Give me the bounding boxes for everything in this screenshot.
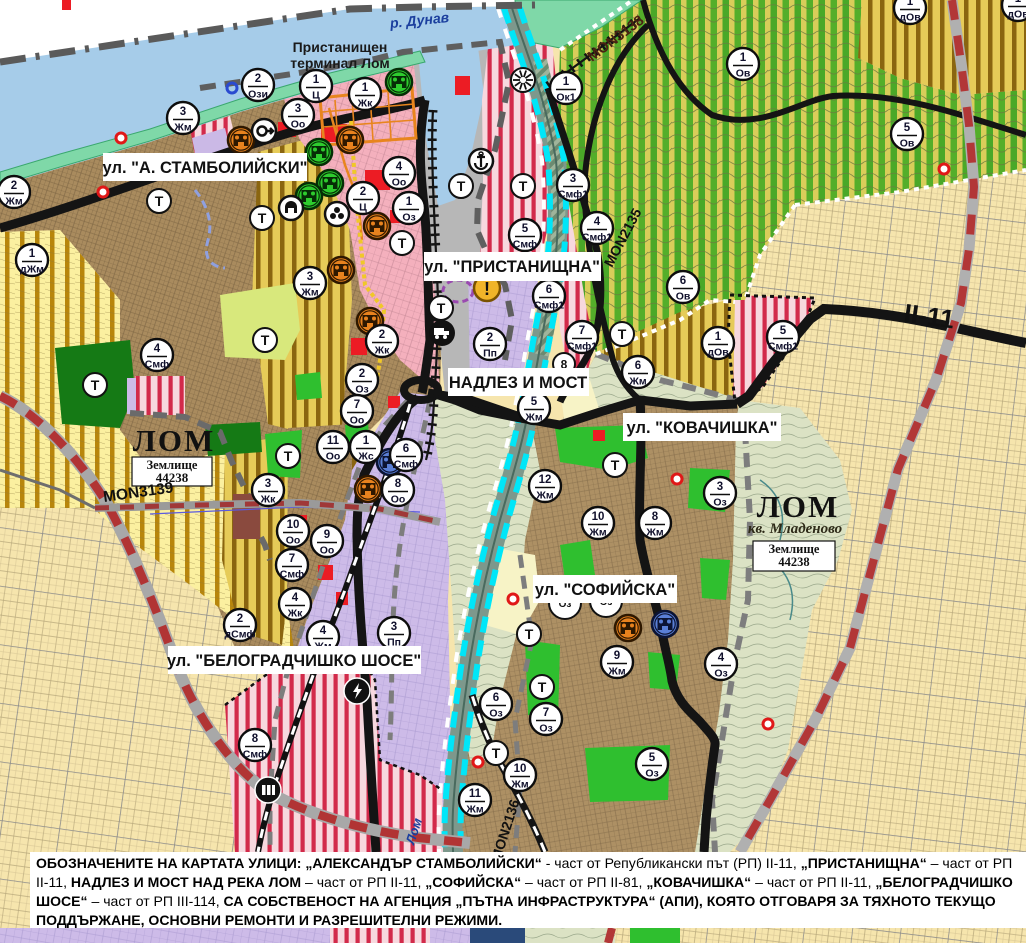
svg-text:Жм: Жм — [173, 122, 191, 134]
svg-text:Жм: Жм — [510, 779, 528, 791]
svg-text:1: 1 — [406, 196, 413, 208]
svg-text:Оз: Оз — [489, 708, 502, 720]
svg-text:T: T — [525, 626, 534, 642]
svg-text:10: 10 — [287, 519, 300, 531]
svg-text:терминал Лом: терминал Лом — [290, 55, 390, 71]
svg-text:T: T — [618, 326, 627, 342]
svg-text:T: T — [611, 457, 620, 473]
svg-text:T: T — [258, 210, 267, 226]
svg-text:Пристанищен: Пристанищен — [293, 39, 388, 55]
svg-text:Ов: Ов — [900, 138, 915, 150]
svg-text:Жм: Жм — [300, 287, 318, 299]
svg-text:7: 7 — [579, 325, 585, 337]
svg-text:2: 2 — [11, 180, 17, 192]
svg-text:6: 6 — [546, 284, 552, 296]
svg-text:Ок1: Ок1 — [556, 92, 575, 104]
svg-text:5: 5 — [780, 325, 787, 337]
svg-text:Оо: Оо — [350, 415, 365, 427]
svg-text:3: 3 — [295, 103, 301, 115]
svg-text:2: 2 — [359, 368, 365, 380]
svg-text:дЖм: дЖм — [20, 264, 44, 276]
svg-text:11: 11 — [327, 435, 340, 447]
svg-text:Смф: Смф — [243, 749, 267, 761]
svg-text:7: 7 — [543, 707, 549, 719]
svg-text:Оо: Оо — [326, 451, 341, 463]
svg-text:4: 4 — [154, 343, 161, 355]
svg-text:Ц: Ц — [312, 90, 320, 102]
svg-text:T: T — [538, 679, 547, 695]
svg-text:Смф1: Смф1 — [567, 341, 597, 353]
svg-text:1: 1 — [1015, 0, 1022, 5]
svg-text:4: 4 — [320, 625, 327, 637]
svg-text:1: 1 — [362, 82, 369, 94]
svg-text:Жм: Жм — [4, 196, 22, 208]
svg-text:Жм: Жм — [645, 527, 663, 539]
svg-text:1: 1 — [363, 435, 370, 447]
svg-text:Ов: Ов — [676, 291, 691, 303]
svg-text:5: 5 — [522, 223, 529, 235]
svg-text:7: 7 — [354, 399, 360, 411]
svg-text:1: 1 — [313, 74, 320, 86]
svg-text:T: T — [519, 178, 528, 194]
svg-text:1: 1 — [29, 248, 36, 260]
svg-text:9: 9 — [614, 650, 620, 662]
svg-text:T: T — [437, 300, 446, 316]
svg-text:1: 1 — [715, 331, 722, 343]
svg-text:Ов: Ов — [736, 68, 751, 80]
svg-text:7: 7 — [289, 553, 295, 565]
svg-text:1: 1 — [740, 52, 747, 64]
svg-text:11: 11 — [469, 788, 482, 800]
svg-text:6: 6 — [403, 443, 409, 455]
svg-text:4: 4 — [292, 592, 299, 604]
svg-text:Ози: Ози — [248, 89, 268, 101]
svg-text:Жс: Жс — [357, 451, 373, 463]
svg-text:Оо: Оо — [392, 177, 407, 189]
svg-text:Смф1: Смф1 — [534, 300, 564, 312]
svg-text:Оз: Оз — [714, 668, 727, 680]
svg-text:Жк: Жк — [260, 494, 276, 506]
svg-text:3: 3 — [180, 106, 186, 118]
svg-text:ул. "КОВАЧИШКА": ул. "КОВАЧИШКА" — [627, 419, 778, 437]
svg-text:ПОДДЪРЖАНЕ, ОСНОВНИ РЕМОНТИ И: ПОДДЪРЖАНЕ, ОСНОВНИ РЕМОНТИ И РАЗРЕШИТЕЛ… — [36, 912, 502, 928]
svg-text:2: 2 — [487, 332, 493, 344]
svg-text:Оз: Оз — [402, 212, 415, 224]
svg-text:3: 3 — [307, 271, 313, 283]
svg-text:5: 5 — [531, 396, 538, 408]
svg-text:2: 2 — [255, 73, 261, 85]
svg-text:3: 3 — [717, 481, 723, 493]
svg-text:Смф1: Смф1 — [768, 341, 798, 353]
svg-text:Ц: Ц — [359, 202, 367, 214]
svg-text:44238: 44238 — [778, 555, 809, 569]
svg-text:T: T — [492, 745, 501, 761]
svg-text:1: 1 — [563, 76, 570, 88]
svg-text:Жк: Жк — [287, 608, 303, 620]
svg-text:Смф1: Смф1 — [558, 189, 588, 201]
svg-text:Оз: Оз — [713, 497, 726, 509]
svg-text:ЛОМ: ЛОМ — [133, 423, 215, 458]
svg-text:Жк: Жк — [357, 98, 373, 110]
svg-text:T: T — [284, 448, 293, 464]
svg-text:!: ! — [484, 279, 490, 299]
svg-text:ул. "ПРИСТАНИЩНА": ул. "ПРИСТАНИЩНА" — [424, 258, 600, 276]
svg-text:Оз: Оз — [645, 768, 658, 780]
svg-text:Жм: Жм — [588, 527, 606, 539]
svg-text:9: 9 — [324, 529, 330, 541]
svg-text:Жм: Жм — [535, 490, 553, 502]
svg-text:4: 4 — [718, 652, 725, 664]
svg-text:Жм: Жм — [524, 412, 542, 424]
svg-text:6: 6 — [635, 360, 641, 372]
svg-text:6: 6 — [493, 692, 499, 704]
svg-text:8: 8 — [395, 478, 402, 490]
svg-text:ОБОЗНАЧЕНИТЕ НА КАРТАТА УЛИЦИ:: ОБОЗНАЧЕНИТЕ НА КАРТАТА УЛИЦИ: „АЛЕКСАНД… — [36, 854, 1012, 871]
svg-text:НАДЛЕЗ И МОСТ: НАДЛЕЗ И МОСТ — [449, 374, 587, 392]
svg-text:T: T — [457, 178, 466, 194]
svg-text:Жм: Жм — [607, 666, 625, 678]
svg-text:кв. Младеново: кв. Младеново — [748, 521, 842, 537]
svg-text:8: 8 — [252, 733, 259, 745]
svg-text:II-11, НАДЛЕЗ И МОСТ НАД РЕКА: II-11, НАДЛЕЗ И МОСТ НАД РЕКА ЛОМ – част… — [36, 873, 1013, 890]
svg-text:ул. "А. СТАМБОЛИЙСКИ": ул. "А. СТАМБОЛИЙСКИ" — [103, 158, 308, 177]
svg-text:T: T — [398, 235, 407, 251]
svg-text:1: 1 — [907, 0, 914, 8]
svg-text:дОв: дОв — [1007, 9, 1026, 21]
svg-text:6: 6 — [680, 275, 686, 287]
svg-text:Жм: Жм — [465, 804, 483, 816]
svg-text:T: T — [91, 377, 100, 393]
svg-text:ул. "СОФИЙСКА": ул. "СОФИЙСКА" — [535, 580, 675, 599]
svg-text:3: 3 — [570, 173, 576, 185]
svg-text:дСмф: дСмф — [224, 629, 255, 641]
svg-text:ЛОМ: ЛОМ — [757, 489, 839, 524]
svg-text:10: 10 — [514, 763, 527, 775]
svg-text:T: T — [155, 193, 164, 209]
svg-text:5: 5 — [904, 122, 911, 134]
svg-text:ШОСЕ“ – част от РП III-114, СА: ШОСЕ“ – част от РП III-114, СА СОБСТВЕНО… — [36, 893, 996, 909]
svg-text:10: 10 — [592, 511, 605, 523]
svg-text:Оо: Оо — [391, 494, 406, 506]
svg-text:Оз: Оз — [355, 384, 368, 396]
svg-text:ул. "БЕЛОГРАДЧИШКО ШОСЕ": ул. "БЕЛОГРАДЧИШКО ШОСЕ" — [167, 652, 421, 670]
svg-text:T: T — [261, 332, 270, 348]
svg-text:Смф: Смф — [280, 569, 304, 581]
svg-text:Смф: Смф — [145, 359, 169, 371]
svg-text:3: 3 — [391, 621, 397, 633]
svg-text:Смф: Смф — [513, 239, 537, 251]
svg-text:Оо: Оо — [286, 535, 301, 547]
svg-text:4: 4 — [594, 216, 601, 228]
svg-text:2: 2 — [360, 186, 366, 198]
svg-text:4: 4 — [396, 161, 403, 173]
svg-text:8: 8 — [652, 511, 659, 523]
svg-text:дОв: дОв — [899, 12, 921, 24]
svg-text:2: 2 — [379, 329, 385, 341]
svg-text:Смф1: Смф1 — [582, 232, 612, 244]
svg-text:Оо: Оо — [291, 119, 306, 131]
svg-text:5: 5 — [649, 752, 656, 764]
svg-text:3: 3 — [265, 478, 271, 490]
svg-text:дОв: дОв — [707, 347, 729, 359]
svg-text:Жк: Жк — [374, 345, 390, 357]
svg-text:Смф: Смф — [394, 459, 418, 471]
svg-text:Оз: Оз — [539, 723, 552, 735]
svg-text:2: 2 — [237, 613, 243, 625]
svg-text:Землище: Землище — [769, 542, 820, 556]
svg-text:Пп: Пп — [483, 348, 497, 360]
svg-text:Жм: Жм — [628, 376, 646, 388]
svg-text:12: 12 — [539, 474, 552, 486]
svg-text:Оо: Оо — [320, 545, 335, 557]
